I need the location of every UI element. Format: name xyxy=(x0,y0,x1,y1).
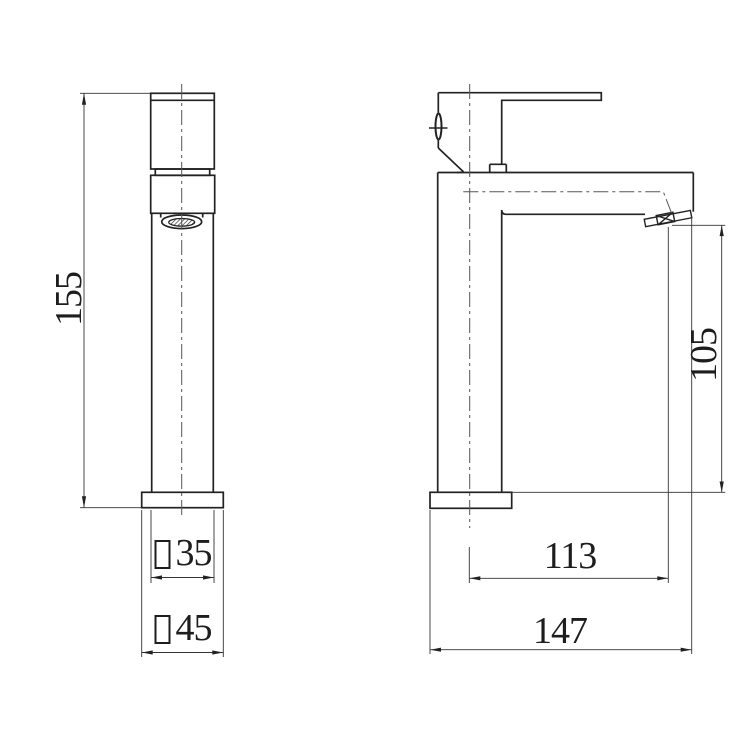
dimension-label-overall-depth: 147 xyxy=(533,612,587,650)
base-plate-front xyxy=(142,492,224,507)
square-symbol xyxy=(155,615,171,644)
dimension-label-outlet-height: 105 xyxy=(685,328,723,382)
dimension-155 xyxy=(80,93,150,507)
base-plate-side xyxy=(430,492,512,508)
side-view xyxy=(429,84,693,528)
body-side xyxy=(438,173,694,493)
handle-button-side xyxy=(429,114,448,140)
neck-ring-front xyxy=(155,169,209,175)
front-view xyxy=(142,84,224,519)
dimension-label-center-to-outlet: 113 xyxy=(544,537,597,575)
centerline-side-horizontal xyxy=(463,192,671,214)
faucet-drawing xyxy=(0,0,750,750)
spout-body-front xyxy=(151,175,215,213)
dimension-113 xyxy=(469,227,668,583)
dimension-label-body-section: 35 xyxy=(155,534,212,572)
handle-lever-side xyxy=(438,93,601,173)
technical-drawing-canvas: 155 105 113 147 35 45 xyxy=(0,0,750,750)
square-symbol xyxy=(155,540,171,569)
column-front xyxy=(152,213,214,492)
dimension-label-base-section: 45 xyxy=(155,609,212,647)
handle-front xyxy=(151,93,215,169)
aerator-side xyxy=(644,209,692,227)
dimension-label-overall-height: 155 xyxy=(50,272,88,326)
